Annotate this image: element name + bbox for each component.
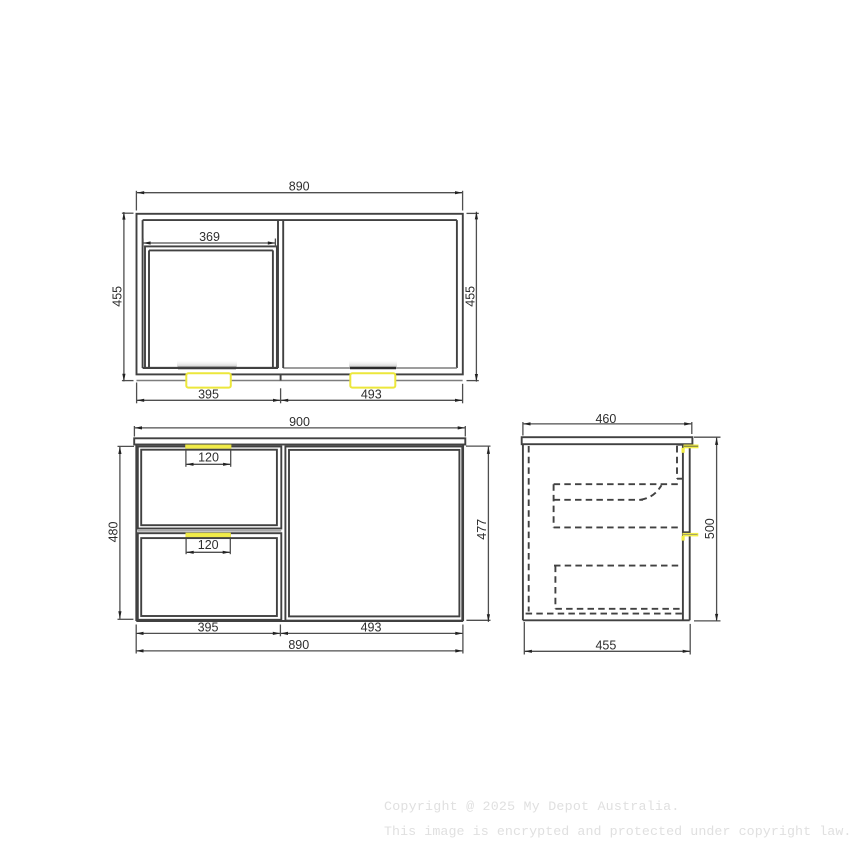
svg-text:477: 477 — [475, 519, 489, 540]
svg-text:890: 890 — [289, 180, 310, 194]
svg-text:890: 890 — [288, 638, 309, 652]
svg-text:120: 120 — [198, 450, 219, 464]
svg-text:Copyright @ 2025 My Depot Aust: Copyright @ 2025 My Depot Australia. — [384, 799, 680, 814]
svg-text:455: 455 — [111, 286, 125, 307]
svg-text:395: 395 — [198, 388, 219, 402]
svg-text:500: 500 — [703, 518, 717, 539]
svg-text:900: 900 — [289, 415, 310, 429]
svg-text:493: 493 — [361, 388, 382, 402]
svg-text:455: 455 — [463, 286, 477, 307]
svg-text:This image is encrypted and pr: This image is encrypted and protected un… — [384, 824, 850, 839]
svg-text:480: 480 — [106, 522, 120, 543]
svg-text:455: 455 — [595, 638, 616, 652]
svg-text:120: 120 — [198, 538, 219, 552]
svg-text:395: 395 — [198, 621, 219, 635]
svg-text:493: 493 — [361, 621, 382, 635]
svg-text:369: 369 — [199, 230, 220, 244]
svg-text:460: 460 — [595, 412, 616, 426]
